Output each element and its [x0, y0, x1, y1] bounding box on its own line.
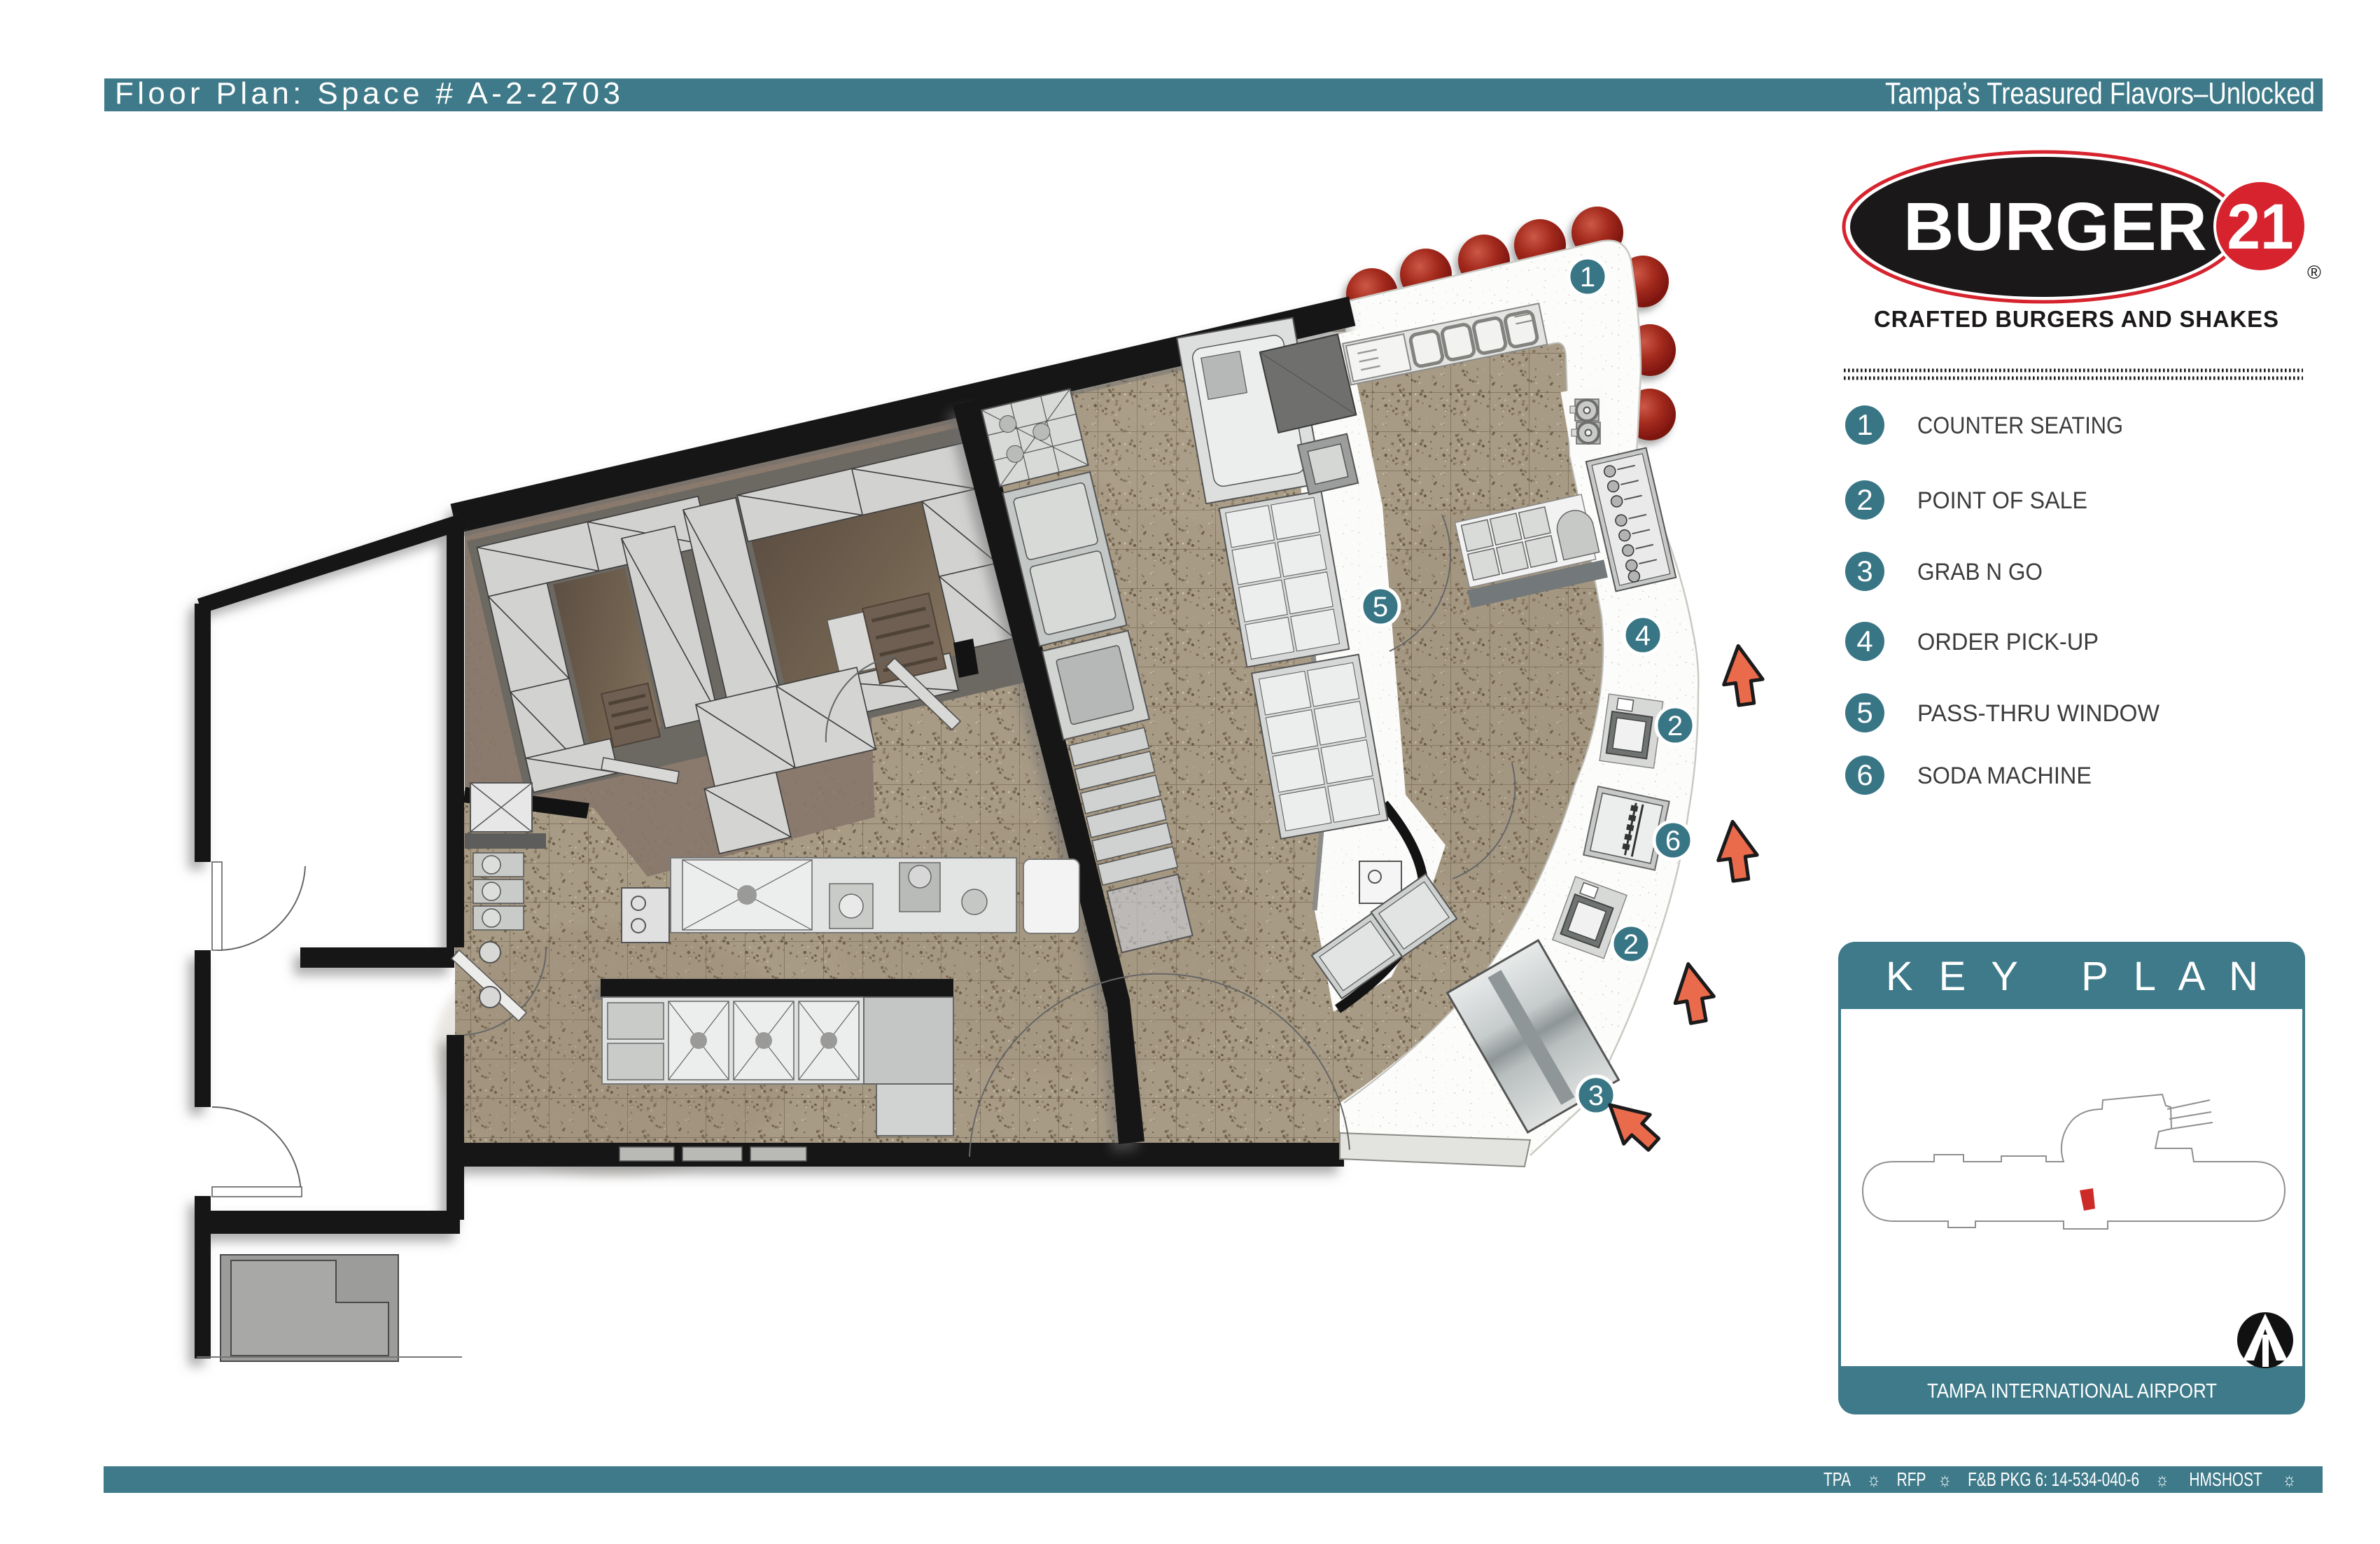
svg-text:PASS-THRU WINDOW: PASS-THRU WINDOW: [1917, 700, 2159, 727]
svg-text:1: 1: [1856, 408, 1872, 441]
svg-text:3: 3: [1856, 555, 1872, 587]
svg-text:POINT OF SALE: POINT OF SALE: [1917, 487, 2087, 514]
svg-text:GRAB N GO: GRAB N GO: [1917, 559, 2043, 585]
svg-text:CRAFTED BURGERS AND SHAKES: CRAFTED BURGERS AND SHAKES: [1874, 306, 2278, 332]
svg-text:K E Y P L A N: K E Y P L A N: [1886, 954, 2258, 999]
svg-text:Tampa’s Treasured Flavors–Unlo: Tampa’s Treasured Flavors–Unlocked: [1885, 76, 2315, 111]
svg-text:2: 2: [1667, 711, 1683, 742]
svg-text:Floor Plan: Space # A-2-2703: Floor Plan: Space # A-2-2703: [115, 76, 620, 111]
svg-text:TPA ☼ RFP ☼ F&B PKG: TPA ☼ RFP ☼ F&B PKG 6: 14-534-040-6 ☼ HM…: [1823, 1468, 2296, 1490]
svg-text:®: ®: [2307, 262, 2321, 283]
svg-text:ORDER PICK-UP: ORDER PICK-UP: [1917, 629, 2099, 655]
svg-text:2: 2: [1623, 929, 1639, 960]
svg-text:21: 21: [2227, 191, 2294, 263]
svg-text:3: 3: [1588, 1080, 1604, 1111]
svg-text:4: 4: [1635, 620, 1651, 651]
svg-text:TAMPA INTERNATIONAL AIRPORT: TAMPA INTERNATIONAL AIRPORT: [1927, 1380, 2217, 1403]
svg-text:BURGER: BURGER: [1903, 188, 2207, 265]
svg-text:5: 5: [1856, 696, 1872, 729]
svg-text:6: 6: [1665, 826, 1681, 856]
svg-text:COUNTER SEATING: COUNTER SEATING: [1917, 412, 2123, 439]
svg-text:2: 2: [1856, 483, 1872, 516]
svg-text:4: 4: [1856, 625, 1872, 658]
svg-text:5: 5: [1373, 592, 1388, 623]
svg-text:6: 6: [1856, 758, 1872, 791]
svg-text:SODA MACHINE: SODA MACHINE: [1917, 763, 2092, 789]
svg-text:1: 1: [1580, 262, 1595, 293]
